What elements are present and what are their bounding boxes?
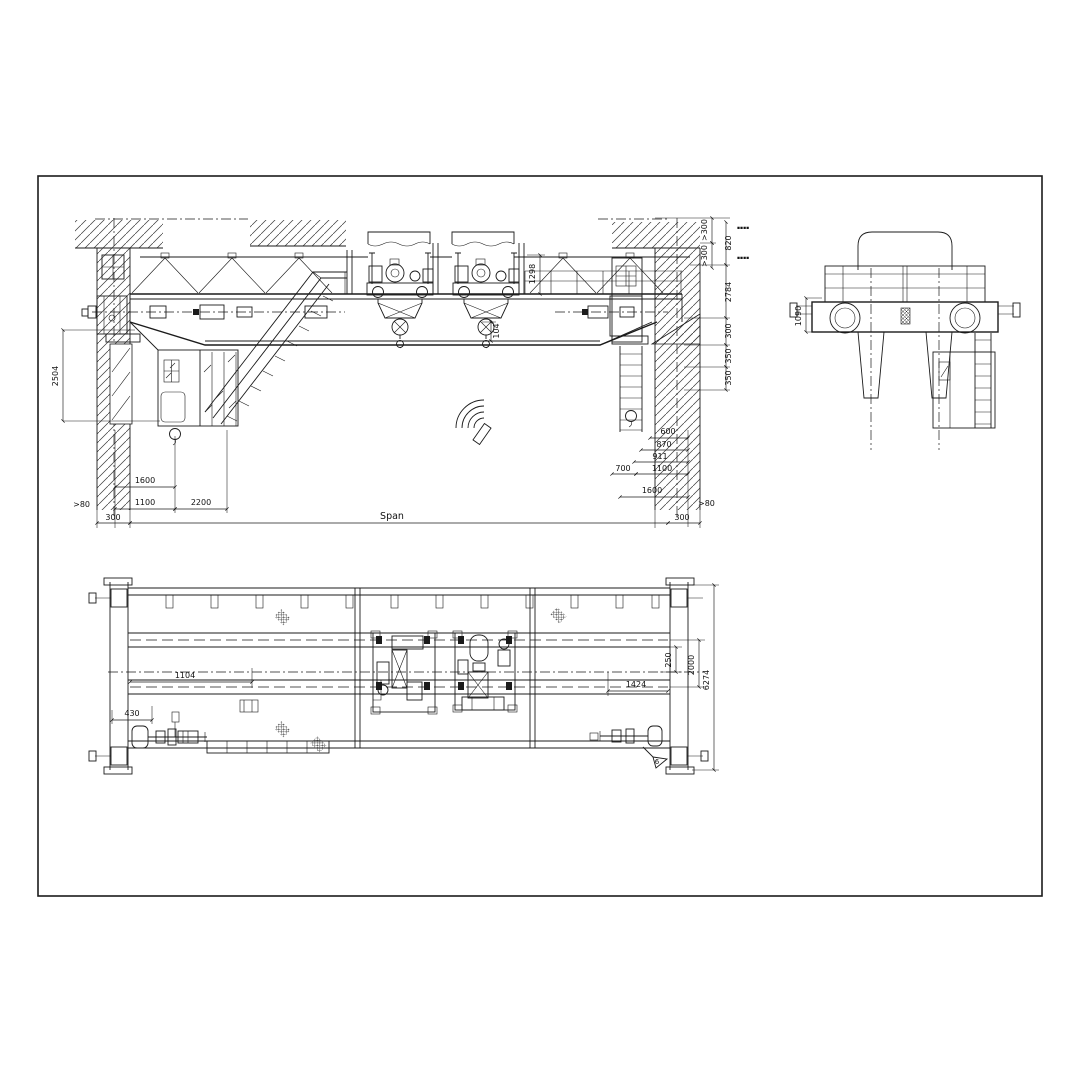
dim-6274: 6274 bbox=[702, 670, 711, 690]
section-marker-label: 6 bbox=[655, 758, 660, 766]
dim-1104: 1104 bbox=[175, 671, 195, 680]
dim-1600-left: 1600 bbox=[135, 476, 155, 485]
dim-1424: 1424 bbox=[626, 680, 646, 689]
crane-general-arrangement-drawing: 2504 1600 1100 2200 >80 300 Span 300 600… bbox=[0, 0, 1080, 1080]
elevation-note-a: ▪▪▪▪ bbox=[737, 226, 749, 231]
dim-300-left: 300 bbox=[105, 513, 120, 522]
dim-2200: 2200 bbox=[191, 498, 211, 507]
dim-820: 820 bbox=[724, 235, 733, 250]
dim-700: 700 bbox=[615, 464, 630, 473]
dim-1090: 1090 bbox=[794, 306, 803, 326]
dim-870: 870 bbox=[656, 440, 671, 449]
dim-250: 250 bbox=[664, 652, 673, 667]
dim-top-clear-b: >300 bbox=[700, 245, 709, 267]
dim-2000: 2000 bbox=[687, 655, 696, 675]
dim-1600-right: 1600 bbox=[642, 486, 662, 495]
dim-104: 104 bbox=[492, 323, 501, 338]
dim-span: Span bbox=[380, 511, 404, 522]
dim-1100-right: 1100 bbox=[652, 464, 672, 473]
dim-clearance-right: >80 bbox=[698, 499, 715, 508]
dim-911: 911 bbox=[652, 452, 667, 461]
elevation-note-b: ▪▪▪▪ bbox=[737, 256, 749, 261]
dim-clearance-left: >80 bbox=[73, 500, 90, 509]
dim-300-right: 300 bbox=[674, 513, 689, 522]
dim-2504: 2504 bbox=[51, 366, 60, 386]
dim-430: 430 bbox=[124, 709, 139, 718]
dim-1100: 1100 bbox=[135, 498, 155, 507]
dim-1298: 1298 bbox=[528, 264, 537, 284]
dim-300-vert: 300 bbox=[724, 323, 733, 338]
dim-top-clear-a: >300 bbox=[700, 219, 709, 241]
dim-350-a: 350 bbox=[724, 348, 733, 363]
dim-350-b: 350 bbox=[724, 370, 733, 385]
dim-600: 600 bbox=[660, 427, 675, 436]
dim-2784: 2784 bbox=[724, 282, 733, 302]
